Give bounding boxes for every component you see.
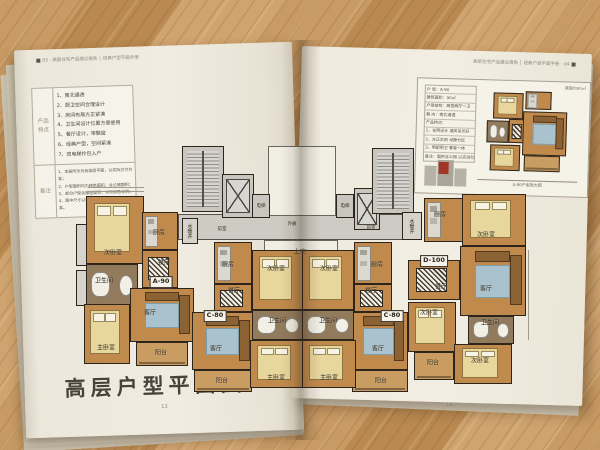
inset-kitchen: [525, 91, 551, 110]
inset-floor-plan: [477, 88, 579, 179]
right-page-header: 高层住宅产品建议报告 │ 经典户型平面手册 · 04: [473, 59, 576, 68]
notes-row-label: 备注: [35, 165, 58, 218]
photo-of-floorplan-booklet: 03 · 高层住宅产品建议报告 │ 经典户型平面手册 产品特点 1、南北通透2、…: [0, 0, 600, 450]
features-row-label: 产品特点: [32, 88, 55, 165]
inset-bedroom-1: [493, 92, 524, 119]
furniture-sofa2-icon: [533, 115, 557, 123]
notes-label-text: 备注: [39, 187, 51, 197]
left-header-text: 03 · 高层住宅产品建议报告 │ 经典户型平面手册: [42, 55, 139, 64]
furniture-bed-icon: [494, 148, 514, 168]
building-elevation-thumbnail: [424, 158, 467, 187]
right-header-text: 高层住宅产品建议报告 │ 经典户型平面手册 · 04: [473, 59, 570, 68]
left-page: 03 · 高层住宅产品建议报告 │ 经典户型平面手册 产品特点 1、南北通透2、…: [14, 42, 304, 439]
furniture-table-icon: [511, 124, 522, 139]
inset-bedroom-2: [490, 144, 521, 171]
feature-item: 7、双电梯拎包入户: [58, 148, 131, 160]
right-page-number: 14: [446, 402, 453, 408]
features-label-text: 产品特点: [37, 117, 50, 136]
notes-row: 备注 1、本册所示为标准层平面，以实际交付为准；2、户型面积均为建筑面积，含公摊…: [35, 163, 137, 218]
inset-caption: A-90户型放大图: [477, 179, 577, 190]
inset-living: [522, 111, 567, 156]
inset-balcony: [524, 155, 560, 172]
furniture-rug-icon: [533, 124, 557, 146]
features-row: 产品特点 1、南北通透2、厨卫空间合理设计3、房间布局方正紧凑4、卫生间设计位置…: [32, 86, 134, 166]
features-list: 1、南北通透2、厨卫空间合理设计3、房间布局方正紧凑4、卫生间设计位置方便使用5…: [53, 86, 134, 165]
left-page-header: 03 · 高层住宅产品建议报告 │ 经典户型平面手册: [36, 55, 139, 64]
page-title: 高层户型平面图: [64, 367, 247, 403]
inset-bath: [486, 120, 509, 143]
furniture-kitchen-icon: [528, 93, 538, 108]
header-square-icon: [36, 59, 40, 63]
unit-detail-inset: 建面约90㎡ 户 型：A-90建筑面积：90㎡户型结构：两室两厅一卫朝 向：南北…: [414, 77, 591, 198]
book-gutter-shadow: [281, 40, 321, 440]
note-item: 4、图中尺寸以毫米计，最终以施工图为准。: [59, 195, 134, 212]
notes-list: 1、本册所示为标准层平面，以实际交付为准；2、户型面积均为建筑面积，含公摊面积；…: [56, 163, 137, 217]
elevation-block: [424, 165, 437, 185]
elevation-highlight: [438, 162, 448, 174]
product-features-table: 产品特点 1、南北通透2、厨卫空间合理设计3、房间布局方正紧凑4、卫生间设计位置…: [31, 85, 137, 219]
furniture-bed-icon: [497, 96, 517, 116]
right-page: 高层住宅产品建议报告 │ 经典户型平面手册 · 04 建面约90㎡ 户 型：A-…: [292, 46, 592, 406]
header-square-icon: [572, 63, 576, 67]
inset-spec-table: 户 型：A-90建筑面积：90㎡户型结构：两室两厅一卫朝 向：南北通透产品特点：…: [423, 84, 477, 162]
elevation-block: [454, 168, 466, 186]
furniture-tub-icon: [489, 125, 498, 139]
furniture-wc-icon: [499, 126, 506, 138]
left-page-number: 13: [161, 404, 168, 410]
